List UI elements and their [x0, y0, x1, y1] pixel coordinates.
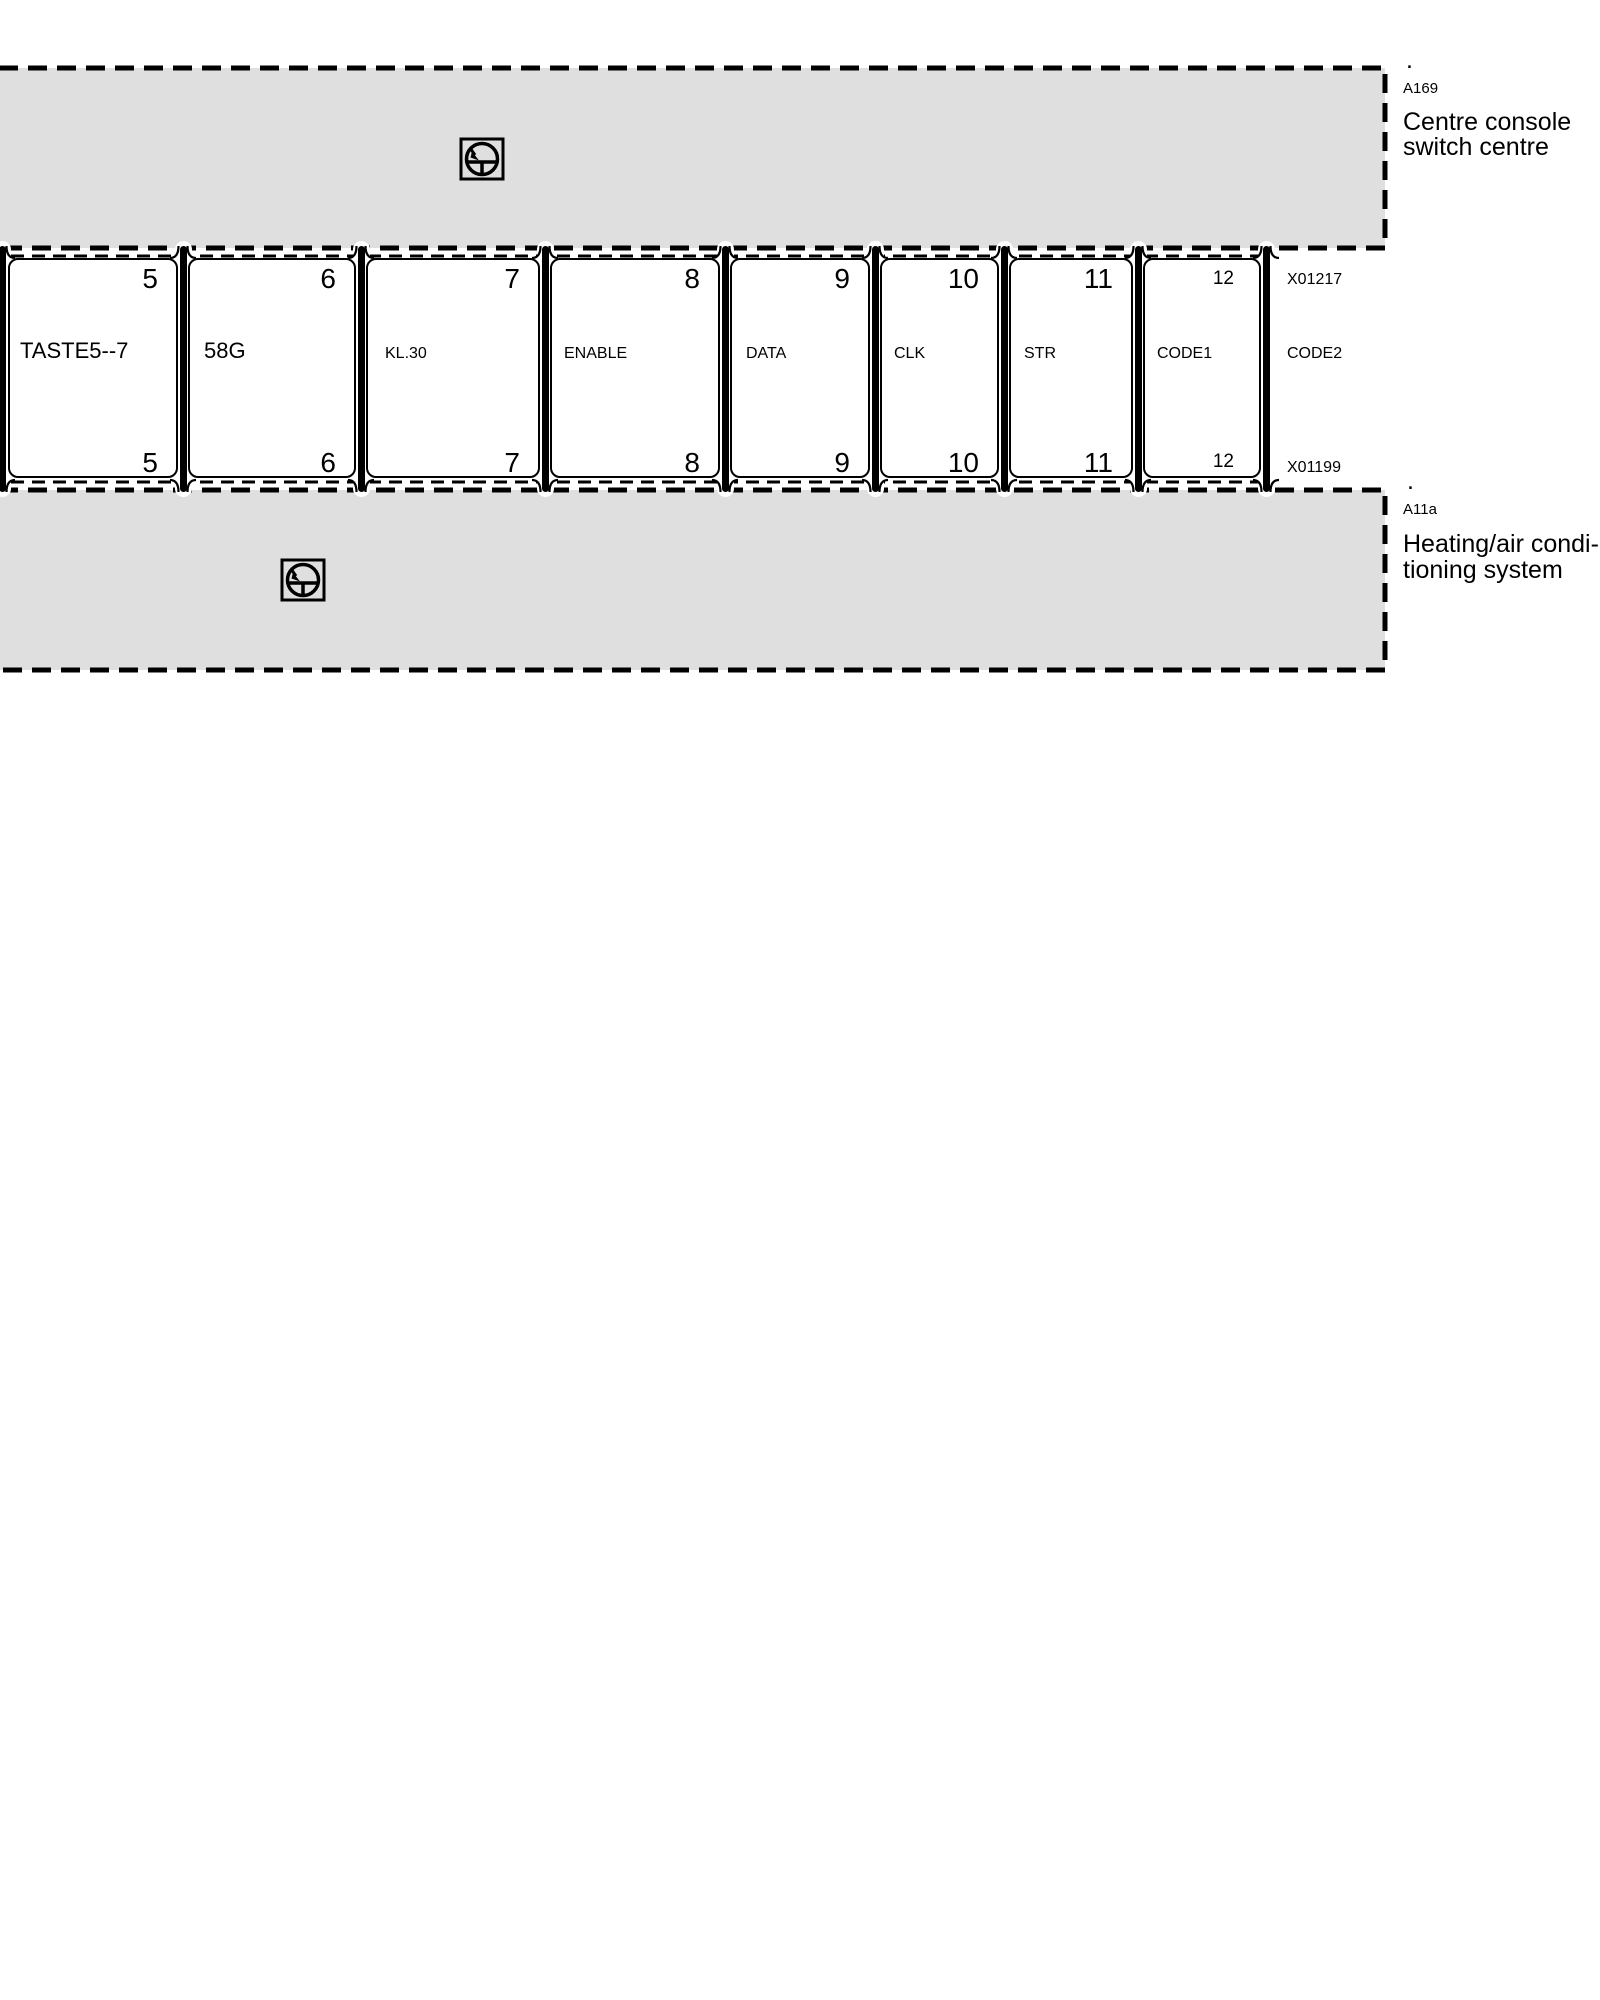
signal-label: CODE1	[1157, 345, 1212, 362]
pin-number-bottom: 6	[320, 448, 336, 477]
pin-number-bottom: 9	[834, 448, 850, 477]
pin-number-top: 10	[948, 264, 979, 293]
pin-number-bottom: 10	[948, 448, 979, 477]
wire-pin-7	[542, 246, 549, 492]
component-name: Heating/air condi-	[1403, 531, 1599, 557]
pin-number-bottom: 11	[1084, 448, 1113, 477]
signal-label: TASTE5--7	[20, 339, 128, 362]
connector-id-top: X01217	[1287, 271, 1342, 288]
pin-number-top: 8	[684, 264, 700, 293]
pin-number-top: 11	[1084, 264, 1113, 293]
wire-pin-9	[872, 246, 879, 492]
top-component-box	[0, 68, 1385, 248]
wire-pin-6	[358, 246, 365, 492]
pin-box-10	[880, 258, 999, 478]
pin-number-top: 9	[834, 264, 850, 293]
wire-pin-12	[1263, 246, 1270, 492]
wire-pin-4	[0, 246, 6, 492]
wiring-diagram-page: { "top_component": { "dot": ".", "code":…	[0, 0, 1600, 2000]
component-name: switch centre	[1403, 134, 1549, 160]
signal-label: STR	[1024, 345, 1056, 362]
component-code: A11a	[1403, 502, 1437, 518]
pin-number-top: 6	[320, 264, 336, 293]
component-name: Centre console	[1403, 109, 1571, 135]
control-unit-icon	[459, 137, 505, 181]
wire-pin-10	[1001, 246, 1008, 492]
pin-number-bottom: 8	[684, 448, 700, 477]
pin-number-bottom: 5	[142, 448, 158, 477]
connector-id-bottom: X01199	[1287, 459, 1341, 476]
signal-label: CODE2	[1287, 345, 1342, 362]
pin-number-top: 7	[504, 264, 520, 293]
pin-number-top: 5	[142, 264, 158, 293]
component-name: tioning system	[1403, 557, 1563, 583]
signal-label: ENABLE	[564, 345, 627, 362]
wire-pin-8	[722, 246, 729, 492]
wire-pin-11	[1135, 246, 1142, 492]
ref-dot: .	[1407, 469, 1414, 494]
pin-number-bottom: 12	[1213, 452, 1234, 472]
pin-box-12	[1143, 258, 1261, 478]
signal-label: KL.30	[385, 345, 427, 362]
pin-number-bottom: 7	[504, 448, 520, 477]
signal-label: 58G	[204, 339, 246, 362]
bottom-component-box	[0, 490, 1385, 670]
signal-label: DATA	[746, 345, 786, 362]
pin-box-11	[1009, 258, 1133, 478]
pin-number-top: 12	[1213, 269, 1234, 289]
signal-label: CLK	[894, 345, 925, 362]
wire-pin-5	[180, 246, 187, 492]
ref-dot: .	[1406, 48, 1413, 73]
component-code: A169	[1403, 81, 1438, 97]
control-unit-icon	[280, 558, 326, 602]
